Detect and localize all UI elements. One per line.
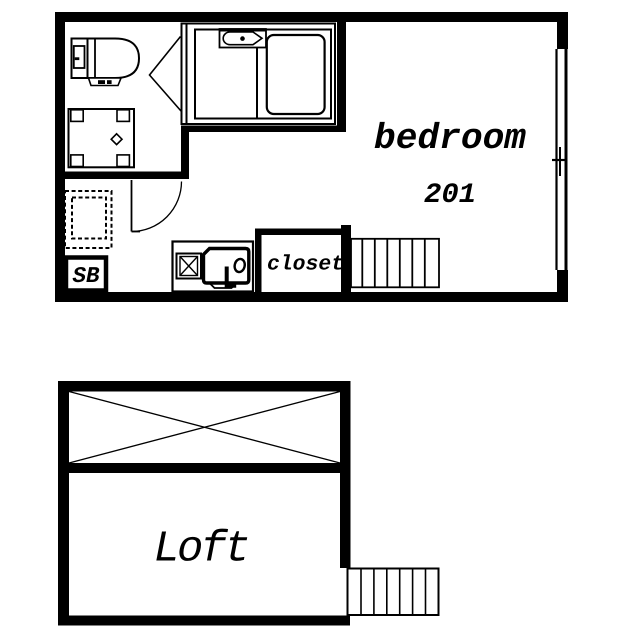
svg-text:SB: SB <box>72 263 100 289</box>
svg-text:201: 201 <box>424 180 476 211</box>
svg-text:Loft: Loft <box>154 525 251 575</box>
svg-text:bedroom: bedroom <box>374 118 526 159</box>
svg-text:closet: closet <box>267 254 344 277</box>
